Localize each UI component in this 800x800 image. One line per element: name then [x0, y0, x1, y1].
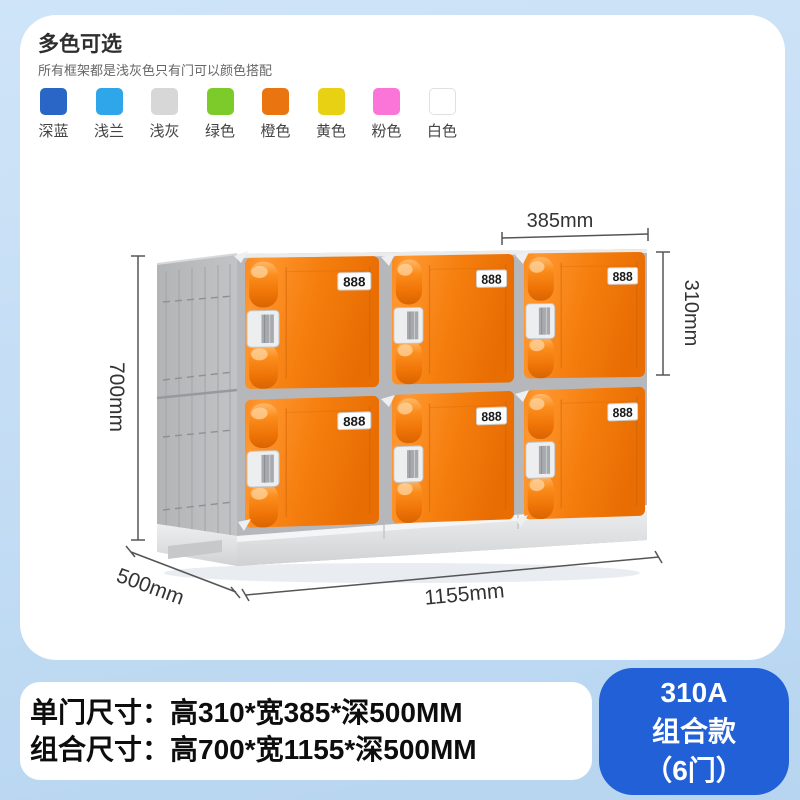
- spec-single-door: 单门尺寸：高310*宽385*深500MM: [30, 694, 592, 731]
- spec-combined: 组合尺寸：高700*宽1155*深500MM: [30, 731, 592, 768]
- swatch-color-white: [429, 88, 456, 115]
- swatch-color-yellow: [318, 88, 345, 115]
- swatch-label: 绿色: [205, 120, 235, 141]
- swatch-color-orange: [262, 88, 289, 115]
- swatch-color-pink: [373, 88, 400, 115]
- swatch-orange: 橙色: [262, 88, 289, 141]
- swatch-label: 浅兰: [94, 120, 124, 141]
- swatch-label: 粉色: [372, 120, 402, 141]
- swatch-light-gray: 浅灰: [151, 88, 178, 141]
- color-swatch-row: 深蓝 浅兰 浅灰 绿色 橙色 黄色 粉色 白色: [40, 88, 456, 141]
- swatch-green: 绿色: [207, 88, 234, 141]
- swatch-label: 深蓝: [39, 120, 69, 141]
- colors-subtitle: 所有框架都是浅灰色只有门可以颜色搭配: [38, 60, 272, 79]
- swatch-label: 白色: [427, 120, 457, 141]
- swatch-label: 黄色: [316, 120, 346, 141]
- swatch-white: 白色: [429, 88, 456, 141]
- swatch-color-green: [207, 88, 234, 115]
- colors-title: 多色可选: [38, 28, 122, 58]
- swatch-pink: 粉色: [373, 88, 400, 141]
- swatch-light-blue: 浅兰: [96, 88, 123, 141]
- badge-doors: （6门）: [644, 751, 744, 790]
- swatch-yellow: 黄色: [318, 88, 345, 141]
- swatch-color-dark-blue: [40, 88, 67, 115]
- swatch-dark-blue: 深蓝: [40, 88, 67, 141]
- badge-model: 310A: [661, 673, 728, 712]
- spec-box: 单门尺寸：高310*宽385*深500MM 组合尺寸：高700*宽1155*深5…: [20, 682, 592, 780]
- badge-type: 组合款: [652, 712, 736, 751]
- swatch-color-light-blue: [96, 88, 123, 115]
- swatch-color-light-gray: [151, 88, 178, 115]
- swatch-label: 浅灰: [150, 120, 180, 141]
- swatch-label: 橙色: [261, 120, 291, 141]
- model-badge: 310A 组合款 （6门）: [599, 668, 789, 795]
